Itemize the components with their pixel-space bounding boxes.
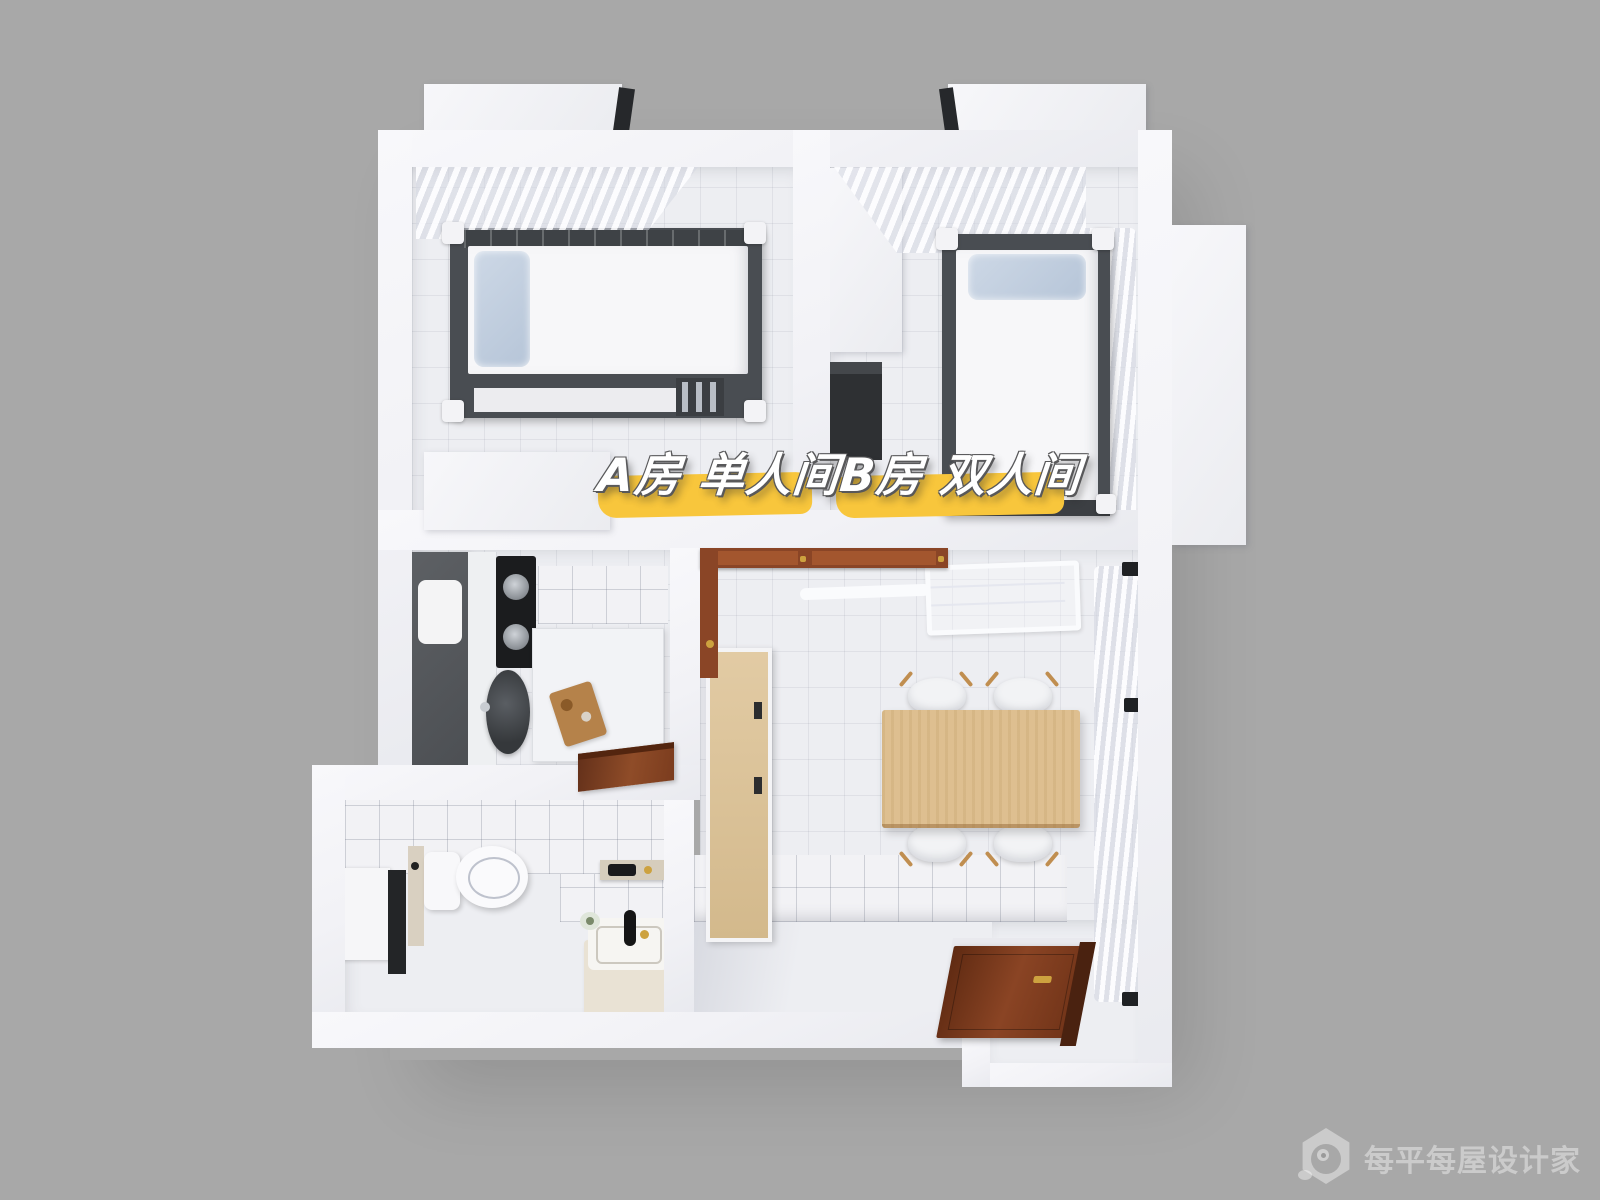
- ladder-rung: [710, 382, 716, 412]
- window-box-top-right: [948, 84, 1146, 134]
- bedroom-b-pillow: [968, 254, 1086, 300]
- door-knob-icon: [706, 640, 714, 648]
- bathroom-shelf: [600, 860, 664, 880]
- door-panel: [812, 551, 936, 565]
- dining-chair: [994, 678, 1052, 714]
- room-a-label: A房 单人间: [596, 450, 842, 501]
- bathroom-wall-tiles-right: [560, 874, 664, 922]
- outer-wall-right: [1138, 130, 1172, 1087]
- wall-nook-step: [962, 1037, 990, 1087]
- dining-table: [882, 710, 1080, 828]
- window-box-top-left: [424, 84, 622, 134]
- dining-side-curtain: [1094, 566, 1138, 1002]
- wall-nook-bottom: [962, 1063, 1172, 1087]
- bed-b-corner-post: [1096, 494, 1116, 514]
- door-handle-icon: [1033, 976, 1052, 983]
- dining-door-lintel: [700, 548, 948, 568]
- bathroom-window-frame: [388, 870, 406, 974]
- outer-wall-left: [378, 130, 412, 792]
- flower-leaf-icon: [586, 917, 594, 925]
- sideboard-handle-icon: [754, 777, 762, 794]
- door-hinge-icon: [800, 556, 806, 562]
- toilet-tank: [424, 852, 460, 910]
- ladder-rung: [696, 382, 702, 412]
- drying-rack: [925, 560, 1081, 635]
- screen-hook-icon: [411, 862, 419, 870]
- wall-bottom: [312, 1012, 990, 1048]
- food-item-icon: [559, 697, 574, 712]
- kitchen-cabinet-column: [468, 552, 497, 782]
- kitchen-round-sink: [486, 670, 530, 754]
- bed-a-corner-post: [442, 400, 464, 422]
- gas-stove: [496, 556, 536, 668]
- kitchen-tall-cabinet: [412, 552, 468, 785]
- desk-top-face: [828, 362, 882, 374]
- rack-bar: [931, 582, 1065, 589]
- toilet-seat-ring: [468, 857, 520, 899]
- basin-gold-fitting-icon: [640, 930, 649, 939]
- screenshot-root: A房 单人间 B房 双人间 每平每屋设计家: [0, 0, 1600, 1200]
- bed-b-corner-post: [936, 228, 958, 250]
- watermark: 每平每屋设计家: [1300, 1124, 1560, 1186]
- door-hinge-icon: [938, 556, 944, 562]
- rack-bar: [931, 600, 1065, 607]
- bed-a-corner-post: [442, 222, 464, 244]
- bedroom-b-desk: [828, 362, 882, 460]
- cabinet-white-panel: [418, 580, 462, 644]
- toilet-privacy-screen: [408, 846, 424, 946]
- bedroom-a-desk: [424, 452, 610, 530]
- basin-faucet-icon: [624, 910, 636, 946]
- sideboard-handle-icon: [754, 702, 762, 719]
- bathroom-wall-left: [312, 765, 345, 1048]
- bedroom-a-bed-ladder: [676, 378, 724, 416]
- toilet-bowl: [456, 846, 528, 908]
- bedroom-a-pillow: [474, 251, 530, 367]
- bed-a-corner-post: [744, 222, 766, 244]
- watermark-paw-icon: [1298, 1170, 1312, 1180]
- door-panel: [712, 551, 798, 565]
- stove-burner-icon: [503, 624, 529, 650]
- bedroom-a-lower-bunk: [474, 388, 678, 412]
- outer-wall-top: [378, 130, 1172, 167]
- window-box-right-side: [1172, 225, 1246, 545]
- watermark-text: 每平每屋设计家: [1364, 1136, 1581, 1180]
- dining-chair: [908, 824, 966, 862]
- wall-bathroom-dining-divider: [664, 800, 694, 1012]
- shelf-item-icon: [644, 866, 652, 874]
- bathroom-window-pane: [338, 868, 390, 960]
- dining-chair: [994, 824, 1052, 862]
- door-panel-inset: [948, 954, 1075, 1030]
- kitchen-wall-tiles: [538, 566, 668, 624]
- sink-faucet-icon: [480, 702, 490, 712]
- bed-b-corner-post: [1092, 228, 1114, 250]
- toiletry-bag-icon: [608, 864, 636, 876]
- stove-burner-icon: [503, 574, 529, 600]
- ladder-rung: [682, 382, 688, 412]
- flower-pot-icon: [580, 912, 600, 930]
- wood-sideboard: [706, 648, 772, 942]
- room-b-label: B房 双人间: [838, 450, 1084, 501]
- food-item-icon: [580, 710, 593, 723]
- bed-a-corner-post: [744, 400, 766, 422]
- dining-door-jamb: [700, 548, 718, 678]
- logo-pet-pupil-icon: [1321, 1153, 1326, 1158]
- wall-kitchen-dining: [670, 548, 700, 800]
- dining-chair: [908, 678, 966, 714]
